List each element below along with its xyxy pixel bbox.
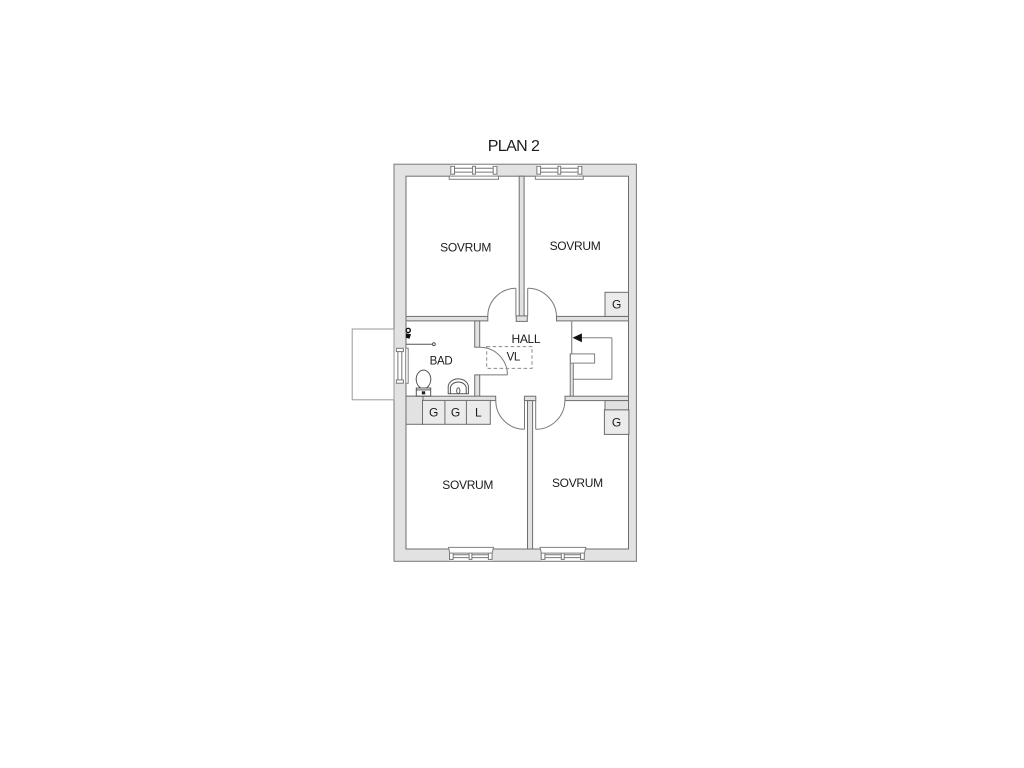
svg-text:PLAN 2: PLAN 2 — [488, 138, 540, 155]
svg-text:VL: VL — [507, 352, 521, 364]
svg-text:SOVRUM: SOVRUM — [550, 239, 601, 253]
svg-text:G: G — [612, 298, 621, 312]
svg-text:G: G — [429, 406, 438, 420]
svg-text:L: L — [475, 406, 482, 420]
svg-text:SOVRUM: SOVRUM — [440, 241, 491, 255]
svg-text:G: G — [612, 416, 621, 430]
svg-text:G: G — [451, 406, 460, 420]
svg-text:SOVRUM: SOVRUM — [552, 476, 603, 490]
svg-text:HALL: HALL — [511, 332, 540, 346]
svg-text:SOVRUM: SOVRUM — [442, 478, 493, 492]
svg-text:BAD: BAD — [430, 356, 453, 368]
